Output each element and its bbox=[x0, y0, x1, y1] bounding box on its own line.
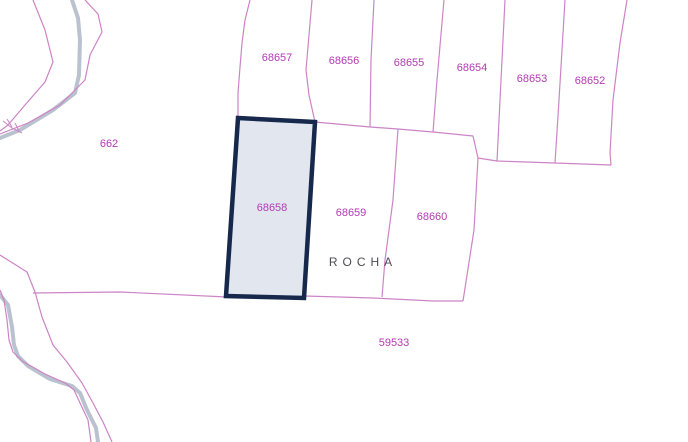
parcel-label-68652: 68652 bbox=[575, 75, 606, 87]
parcel-boundary-upper-left-a bbox=[0, 0, 53, 131]
parcel-boundary-lower-horizontal bbox=[478, 158, 611, 165]
cadastral-map-viewport[interactable]: 662 68657 68656 68655 68654 68653 68652 … bbox=[0, 0, 688, 442]
parcel-divider-68652-right bbox=[610, 0, 627, 165]
parcel-label-68656: 68656 bbox=[329, 55, 360, 67]
parcel-label-68654: 68654 bbox=[457, 62, 488, 74]
parcel-label-662: 662 bbox=[100, 138, 118, 150]
parcel-label-68657: 68657 bbox=[262, 52, 293, 64]
stream-line-upper bbox=[0, 0, 80, 138]
parcel-label-68653: 68653 bbox=[517, 73, 548, 85]
parcel-boundary-lower-left-b bbox=[0, 290, 91, 442]
parcel-label-59533: 59533 bbox=[379, 337, 410, 349]
parcel-label-68658: 68658 bbox=[257, 202, 288, 214]
parcel-divider-68654-68653 bbox=[497, 0, 505, 161]
parcel-boundary-lower-left-entry bbox=[0, 255, 35, 292]
parcel-divider-68656-68655 bbox=[370, 0, 374, 127]
parcel-label-68660: 68660 bbox=[417, 211, 448, 223]
parcel-divider-68660-right bbox=[463, 158, 478, 301]
stream-line-lower bbox=[0, 295, 98, 442]
parcel-boundary-lower-left-a bbox=[35, 292, 112, 442]
parcel-divider-68653-68652 bbox=[555, 0, 565, 163]
parcel-label-68659: 68659 bbox=[336, 207, 367, 219]
parcel-label-68655: 68655 bbox=[394, 57, 425, 69]
parcel-divider-68655-68654 bbox=[433, 0, 444, 132]
parcel-divider-68657-68656 bbox=[306, 0, 315, 122]
parcel-divider-68657-left bbox=[238, 0, 250, 118]
parcel-divider-68659-68660 bbox=[382, 129, 398, 297]
place-label-rocha: ROCHA bbox=[329, 255, 397, 269]
